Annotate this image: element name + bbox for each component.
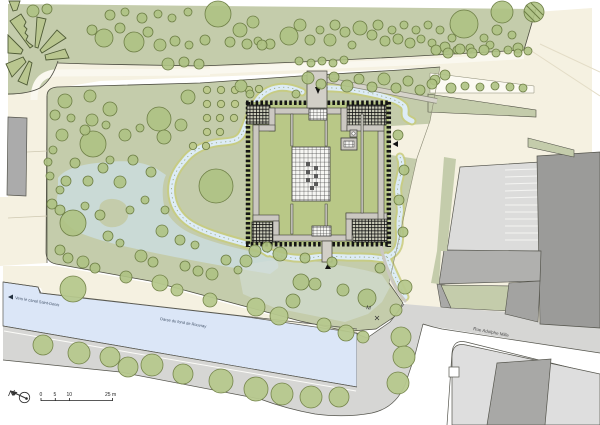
svg-text:0: 0 <box>40 392 43 398</box>
svg-text:10: 10 <box>67 392 73 398</box>
svg-text:25 m: 25 m <box>105 392 116 398</box>
svg-text:5: 5 <box>54 392 57 398</box>
